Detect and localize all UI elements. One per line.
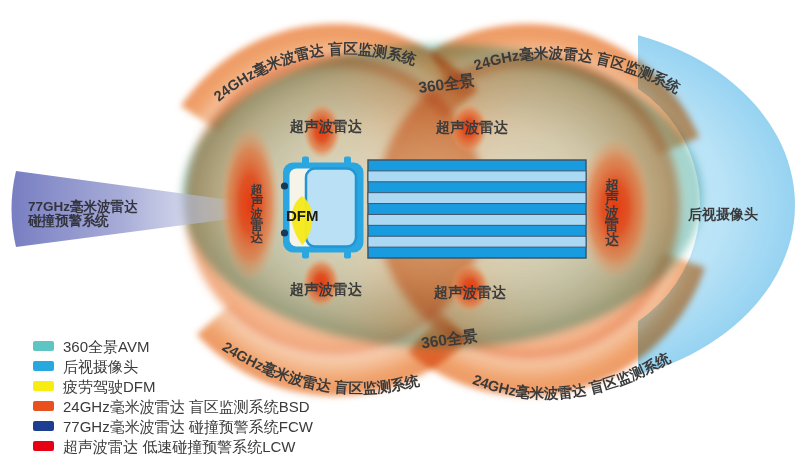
ultrasonic-label-top-right: 超声波雷达 [435, 119, 509, 135]
legend-swatch-dfm [33, 381, 54, 391]
dfm-label: DFM [286, 207, 319, 224]
legend-item-rear-camera: 后视摄像头 [33, 356, 313, 376]
legend-swatch-avm [33, 341, 54, 351]
legend-item-fcw: 77GHz毫米波雷达 碰撞预警系统FCW [33, 416, 313, 436]
legend-swatch-bsd [33, 401, 54, 411]
front-sensor-dot-bottom [281, 229, 288, 236]
legend-item-bsd: 24GHz毫米波雷达 盲区监测系统BSD [33, 396, 313, 416]
fcw-label-line2: 碰撞预警系统 [27, 212, 110, 228]
legend-swatch-lcw [33, 441, 54, 451]
legend-label-lcw: 超声波雷达 低速碰撞预警系统LCW [63, 439, 296, 454]
legend-swatch-rear-camera [33, 361, 54, 371]
ultrasonic-label-top-left: 超声波雷达 [289, 118, 363, 134]
legend-item-dfm: 疲劳驾驶DFM [33, 376, 313, 396]
front-sensor-dot-top [281, 182, 288, 189]
legend: 360全景AVM 后视摄像头 疲劳驾驶DFM 24GHz毫米波雷达 盲区监测系统… [33, 336, 313, 456]
fcw-label-line1: 77GHz毫米波雷达 [28, 199, 138, 214]
legend-swatch-fcw [33, 421, 54, 431]
legend-label-fcw: 77GHz毫米波雷达 碰撞预警系统FCW [63, 419, 313, 434]
rear-camera-label: 后视摄像头 [687, 206, 758, 222]
legend-label-bsd: 24GHz毫米波雷达 盲区监测系统BSD [63, 399, 310, 414]
ultrasonic-label-bottom-left: 超声波雷达 [289, 281, 363, 297]
legend-item-avm: 360全景AVM [33, 336, 313, 356]
legend-label-dfm: 疲劳驾驶DFM [63, 379, 156, 394]
legend-label-rear-camera: 后视摄像头 [63, 359, 138, 374]
ultrasonic-label-front-vertical: 超声波雷达 [250, 183, 264, 245]
trailer [368, 160, 586, 258]
ultrasonic-label-rear-vertical: 超声波雷达 [604, 177, 620, 247]
ultrasonic-label-bottom-right: 超声波雷达 [433, 284, 507, 300]
truck-top-view [281, 157, 586, 259]
legend-label-avm: 360全景AVM [63, 339, 149, 354]
legend-item-lcw: 超声波雷达 低速碰撞预警系统LCW [33, 436, 313, 456]
adas-sensor-coverage-diagram: 24GHz毫米波雷达 盲区监测系统 24GHz毫米波雷达 盲区监测系统 24GH… [0, 0, 800, 467]
